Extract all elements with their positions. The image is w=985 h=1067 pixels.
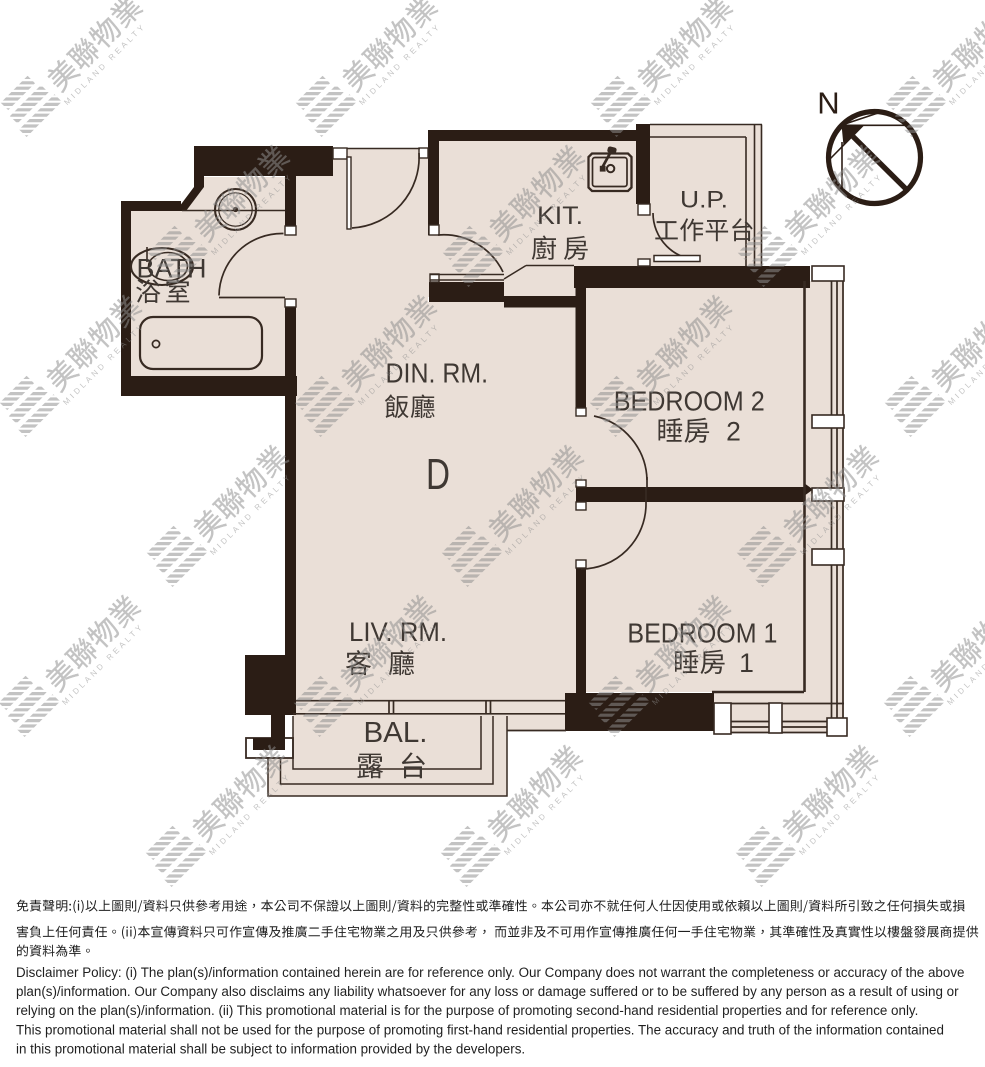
svg-text:2: 2 xyxy=(726,417,741,447)
svg-text:BAL.: BAL. xyxy=(364,717,428,749)
svg-text:U.P.: U.P. xyxy=(680,187,728,214)
svg-text:BEDROOM 1: BEDROOM 1 xyxy=(627,618,777,649)
svg-text:This promotional material shal: This promotional material shall not be u… xyxy=(16,1022,944,1037)
svg-text:1: 1 xyxy=(739,648,754,678)
svg-text:N: N xyxy=(817,86,839,121)
svg-text:in this promotional material s: in this promotional material shall be su… xyxy=(16,1042,525,1057)
svg-text:relying on the plan(s)/informa: relying on the plan(s)/information. (ii)… xyxy=(16,1003,918,1018)
svg-text:D: D xyxy=(426,450,450,499)
svg-text:plan(s)/information. Our Compa: plan(s)/information. Our Company also di… xyxy=(16,984,959,999)
svg-text:BEDROOM 2: BEDROOM 2 xyxy=(614,386,765,417)
svg-text:Disclaimer Policy: (i) The pla: Disclaimer Policy: (i) The plan(s)/infor… xyxy=(16,965,964,980)
svg-text:BATH: BATH xyxy=(137,254,207,284)
